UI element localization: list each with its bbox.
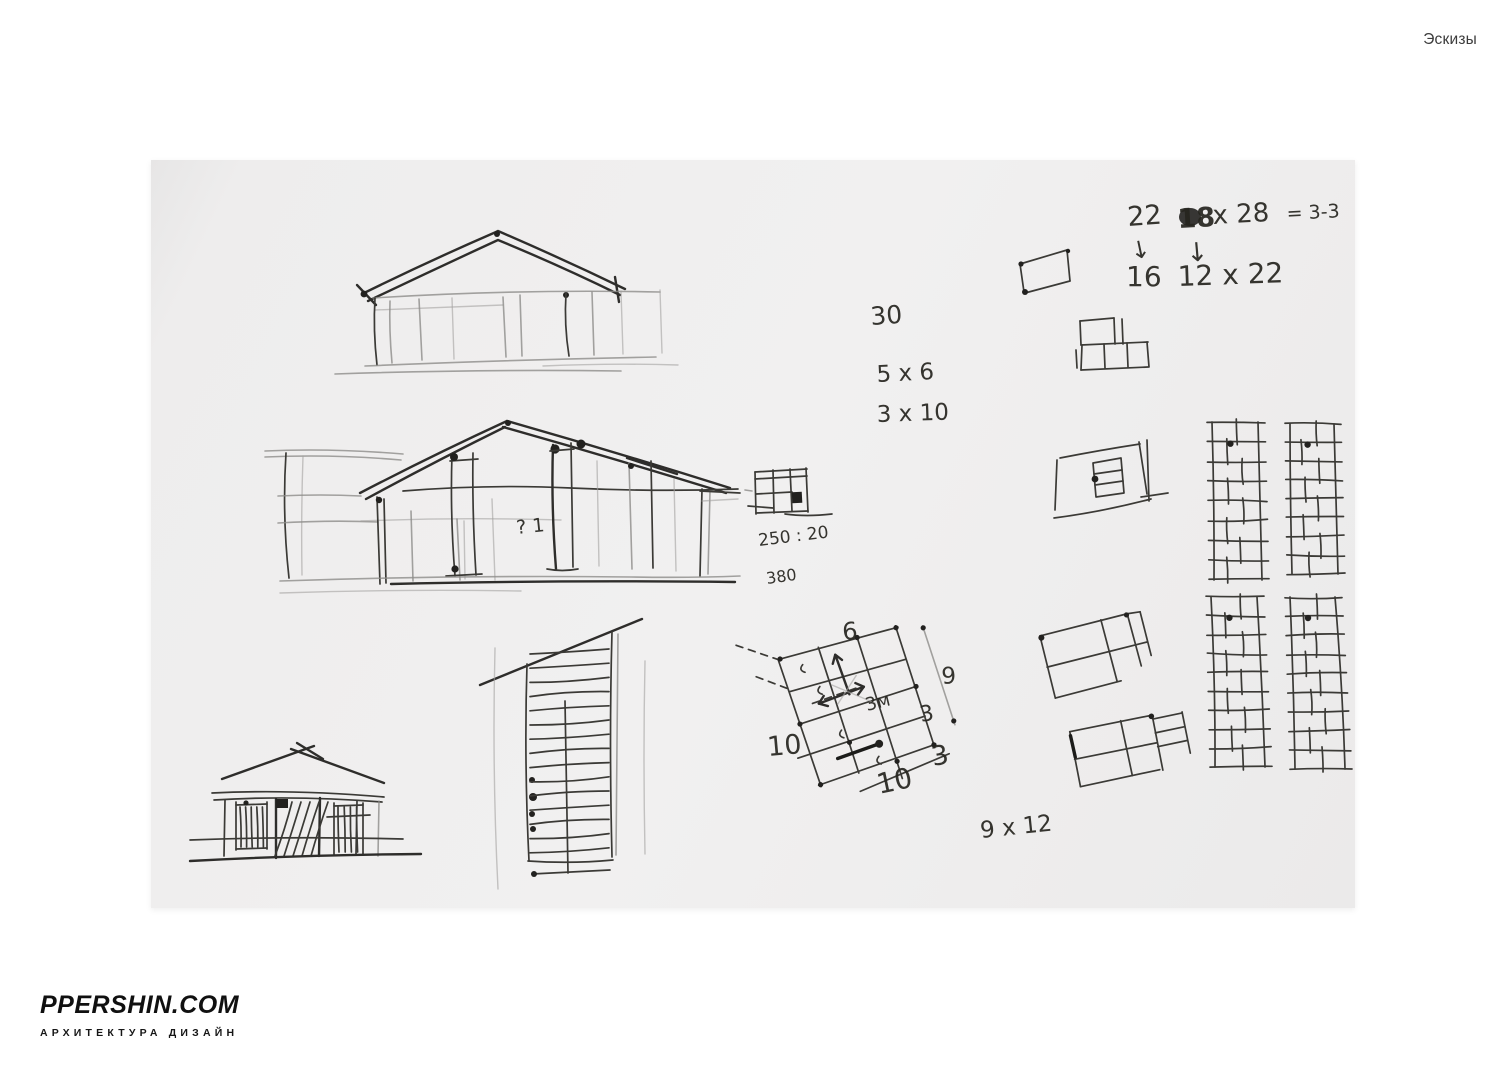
brand-name: PPERSHIN.COM	[40, 991, 239, 1020]
sketch-stroke	[530, 848, 609, 853]
sketch-stroke	[1244, 707, 1245, 732]
sketch-stroke	[1320, 670, 1321, 695]
calc-22: 22	[1126, 200, 1162, 233]
sketch-stroke	[1231, 726, 1232, 751]
sketch-stroke	[1209, 540, 1269, 541]
sketch-stroke	[1210, 766, 1272, 767]
sketch-stroke	[1335, 597, 1345, 769]
louver-slats	[530, 649, 609, 853]
plan-label-top: 6	[841, 617, 859, 646]
sketch-stroke	[262, 807, 263, 847]
sketch-stroke	[530, 777, 609, 782]
sketch-stroke	[338, 807, 339, 852]
note-3x10: 3 x 10	[876, 399, 949, 428]
sketch-stroke	[1209, 579, 1269, 580]
sketch-house-elevation-2: ? 1	[265, 420, 740, 593]
sketch-stroke	[1287, 672, 1346, 674]
sketch-stroke	[530, 692, 609, 697]
sketch-stroke	[1286, 616, 1344, 617]
sketch-stroke	[1319, 459, 1320, 484]
sketch-stroke	[1290, 769, 1352, 770]
sketch-stroke	[530, 819, 609, 824]
sketch-stroke	[530, 734, 609, 739]
sketch-house-elevation-1	[335, 231, 678, 374]
sketch-stroke	[1309, 728, 1310, 753]
sketch-pane-window-1	[1037, 609, 1155, 699]
sketch-stroke	[1209, 560, 1269, 561]
sketch-stroke	[1288, 711, 1348, 712]
sketch-stroke	[530, 663, 609, 668]
sketch-stroke	[1241, 670, 1242, 695]
sketch-stroke	[1311, 690, 1312, 715]
portfolio-page: Эскизы	[0, 0, 1510, 1067]
sketch-canvas: ? 1	[151, 160, 1355, 908]
sketch-stroke	[1316, 421, 1317, 446]
sketch-stroke	[344, 807, 345, 852]
calc-16: 16	[1126, 260, 1162, 293]
sketch-stroke	[293, 802, 310, 856]
sketch-stroke	[257, 807, 258, 847]
ink-blot	[1226, 615, 1232, 621]
sketch-dimension-notes: 22 18 x 28 = 3-3 ↓ ↓ 16 12 x 22	[1126, 198, 1340, 293]
calc-x28: x 28	[1212, 198, 1270, 231]
sketch-stroke	[1236, 419, 1237, 445]
ink-blot	[1305, 615, 1311, 621]
sketch-rect-module	[1018, 249, 1070, 295]
sketch-stroke	[1305, 477, 1306, 502]
sketch-stroke	[530, 834, 609, 839]
plan-label-right-upper: 3	[918, 701, 936, 728]
plan-label-bottom: 10	[874, 761, 916, 801]
sketch-stroke	[1285, 598, 1342, 599]
sketch-stroke	[1334, 424, 1338, 574]
sketch-stroke	[275, 802, 292, 856]
note-30: 30	[869, 300, 903, 331]
sketch-stroke	[1207, 634, 1266, 635]
sketch-brick-columns	[1206, 419, 1352, 772]
sketch-notes: 30 5 x 6 3 x 10	[869, 300, 949, 428]
sketch-stroke	[530, 763, 609, 768]
sketch-stroke	[1210, 747, 1272, 749]
sketch-stroke	[1289, 730, 1350, 732]
sketch-stroke	[1211, 597, 1215, 767]
sketch-stroke	[530, 791, 609, 796]
sketch-window-modules	[1076, 318, 1149, 370]
brand-tagline: АРХИТЕКТУРА ДИЗАЙН	[40, 1027, 239, 1039]
sketch-stroke	[1242, 745, 1243, 770]
sketch-stroke	[1288, 692, 1348, 693]
sketch-stroke	[530, 748, 609, 753]
sketch-stroke	[1287, 573, 1345, 575]
sketch-stroke	[302, 802, 319, 856]
sketch-stroke	[530, 805, 609, 810]
calc-12x22: 12 x 22	[1177, 256, 1284, 293]
sketch-window-grid: 250 : 20 380	[745, 468, 832, 588]
ink-blot	[1304, 441, 1310, 447]
note-250-20: 250 : 20	[757, 523, 830, 551]
sketch-stroke	[1303, 515, 1304, 540]
calc-18: 18	[1177, 202, 1216, 235]
sketch-stroke	[350, 807, 351, 852]
sketch-stroke	[1286, 461, 1343, 462]
sketch-stroke	[284, 802, 301, 856]
sketch-stroke	[1286, 516, 1343, 517]
sketch-stroke	[1287, 535, 1345, 537]
sketch-stroke	[1243, 498, 1244, 524]
brand-logo: PPERSHIN.COM АРХИТЕКТУРА ДИЗАЙН	[40, 991, 239, 1039]
sketch-louver-panel	[480, 619, 645, 889]
sketch-stroke	[530, 706, 609, 711]
sketch-stroke	[251, 807, 252, 847]
sketch-small-house	[190, 743, 421, 861]
sketch-stroke	[530, 677, 609, 682]
sketch-stroke	[246, 807, 247, 847]
note-5x6: 5 x 6	[876, 359, 935, 388]
sketch-stroke	[1206, 615, 1264, 617]
sketch-stroke	[1208, 481, 1267, 482]
sketch-stroke	[1257, 597, 1265, 767]
calc-eq: = 3-3	[1286, 200, 1340, 225]
sketch-stroke	[1209, 729, 1270, 730]
sketch-stroke	[1287, 555, 1345, 556]
window-slats	[240, 807, 358, 852]
sketch-stroke	[1290, 597, 1295, 769]
page-title: Эскизы	[1423, 31, 1477, 49]
sketch-stroke	[1285, 423, 1341, 425]
sketch-stroke	[1240, 538, 1241, 564]
sketch-stroke	[1286, 498, 1343, 499]
sketch-paper: ? 1	[151, 160, 1355, 908]
sketch-stroke	[1316, 594, 1317, 619]
sketch-stroke	[357, 807, 358, 852]
sketch-pane-window-2	[1069, 708, 1193, 787]
sketch-stroke	[1209, 709, 1270, 710]
note-380: 380	[765, 565, 798, 588]
sketch-stroke	[1208, 500, 1267, 502]
sketch-stroke	[1225, 613, 1226, 638]
sketch-stroke	[1208, 671, 1268, 672]
plan-label-right-lower: 3	[929, 739, 951, 773]
plan-label-center: 3м	[863, 689, 892, 715]
plan-label-left: 10	[766, 729, 803, 763]
note-question: ? 1	[515, 514, 545, 539]
sketch-stroke	[1315, 632, 1316, 657]
sketch-stroke	[1206, 596, 1264, 597]
sketch-stroke	[530, 720, 609, 725]
sketch-stroke	[1320, 534, 1321, 559]
sketch-stroke	[1286, 479, 1343, 481]
sketch-stroke	[1208, 519, 1267, 521]
ink-blot	[1227, 441, 1233, 447]
sketch-stroke	[1207, 653, 1266, 655]
sketch-stroke	[240, 807, 241, 847]
sketch-stroke	[1242, 632, 1243, 657]
sketch-louver-window	[1054, 440, 1168, 518]
sketch-stroke	[1289, 750, 1350, 751]
plan-label-side: 9	[941, 663, 957, 690]
sketch-stroke	[1240, 594, 1241, 619]
note-9x12: 9 x 12	[979, 811, 1053, 844]
